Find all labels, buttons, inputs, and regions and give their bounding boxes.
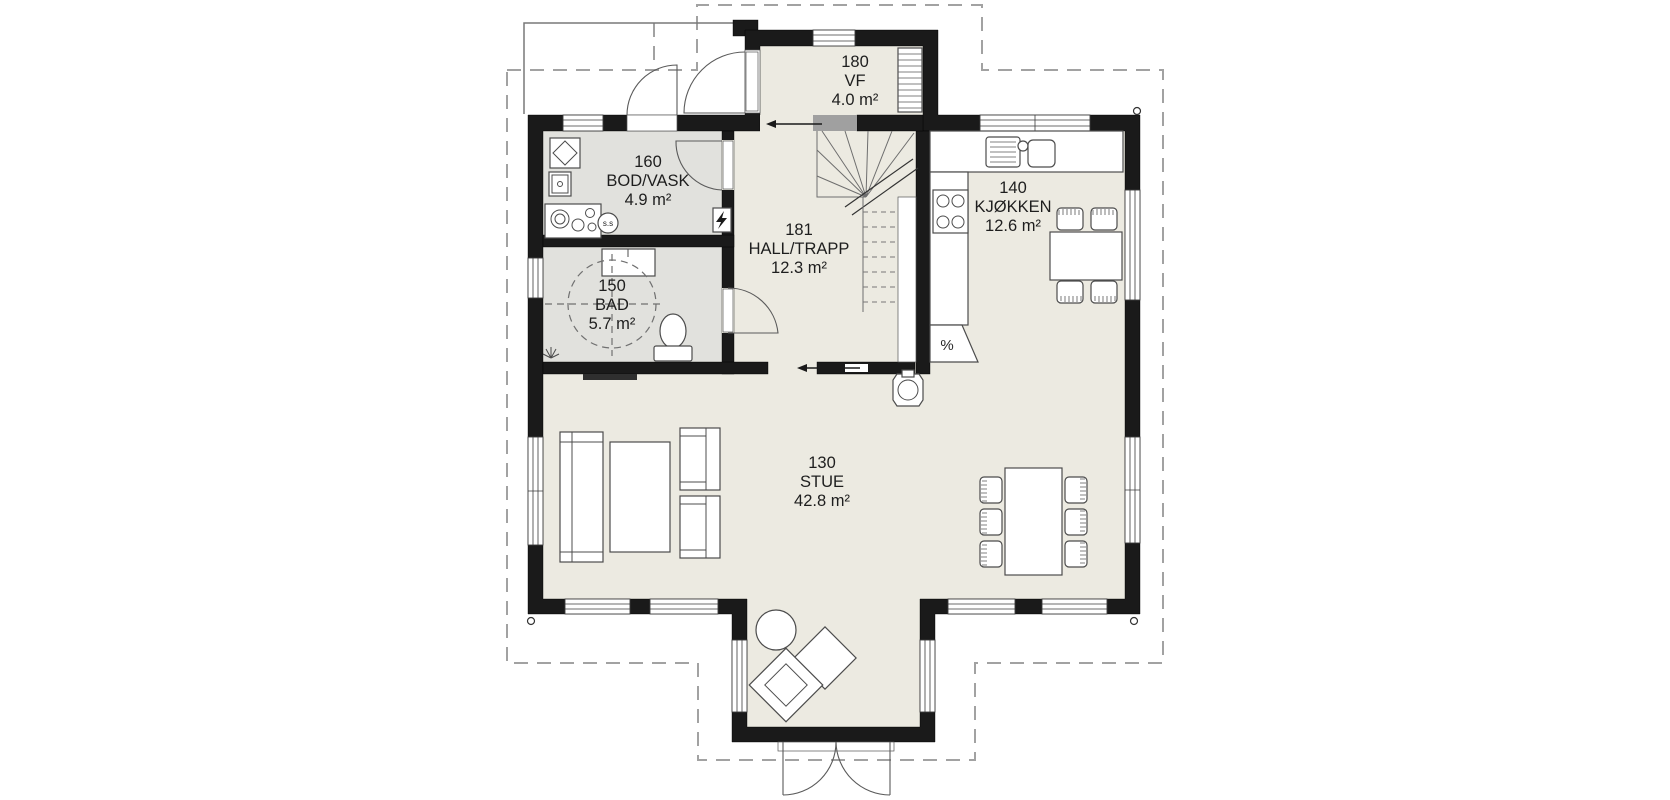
cooktop-icon <box>933 190 968 233</box>
window <box>1125 190 1140 300</box>
window <box>813 30 855 46</box>
svg-text:BAD: BAD <box>595 296 629 314</box>
svg-text:5.7 m²: 5.7 m² <box>589 315 636 333</box>
svg-text:181: 181 <box>785 221 813 239</box>
terrace-double-door <box>778 742 894 795</box>
chair <box>1057 208 1083 230</box>
kitchen-sink-icon <box>986 137 1055 167</box>
floor-drain-label: s.s <box>598 213 618 233</box>
wood-stove-icon <box>893 370 923 406</box>
svg-text:KJØKKEN: KJØKKEN <box>974 198 1051 216</box>
chair <box>1091 208 1117 230</box>
floor-plan-svg: s.s % <box>0 0 1670 800</box>
chair <box>1057 281 1083 303</box>
svg-text:STUE: STUE <box>800 473 844 491</box>
svg-text:42.8 m²: 42.8 m² <box>794 492 850 510</box>
armchair <box>680 496 720 558</box>
svg-text:s.s: s.s <box>603 219 613 228</box>
window <box>1042 599 1107 614</box>
chair <box>980 509 1002 535</box>
svg-text:BOD/VASK: BOD/VASK <box>606 172 689 190</box>
bath-threshold <box>583 374 637 380</box>
entrance-door <box>684 50 760 113</box>
water-heater-icon <box>549 172 571 196</box>
chair <box>980 477 1002 503</box>
round-table <box>756 610 796 650</box>
dining-table <box>1005 468 1062 575</box>
electrical-panel-icon <box>713 208 731 232</box>
utility-sink-icon <box>545 204 601 238</box>
svg-text:140: 140 <box>999 179 1027 197</box>
window <box>650 599 718 614</box>
svg-text:4.9 m²: 4.9 m² <box>625 191 672 209</box>
chair <box>1091 281 1117 303</box>
svg-text:%: % <box>940 337 953 354</box>
svg-text:130: 130 <box>808 454 836 472</box>
chair <box>980 541 1002 567</box>
window <box>980 115 1090 131</box>
svg-text:150: 150 <box>598 277 626 295</box>
vf-hall-sill <box>813 115 857 131</box>
vf-hall-opening <box>760 115 813 131</box>
armchair <box>680 428 720 490</box>
coffee-table <box>610 442 670 552</box>
chair <box>1065 509 1087 535</box>
window <box>528 437 543 545</box>
floor-plan-page: s.s % <box>0 0 1670 800</box>
bathroom-vanity <box>602 249 655 276</box>
svg-text:12.6 m²: 12.6 m² <box>985 217 1041 235</box>
svg-text:4.0 m²: 4.0 m² <box>832 91 879 109</box>
stair-stringer <box>898 197 916 362</box>
svg-text:HALL/TRAPP: HALL/TRAPP <box>749 240 850 258</box>
roof-drain-mark <box>1134 108 1141 115</box>
svg-text:160: 160 <box>634 153 662 171</box>
washing-machine-icon <box>550 138 580 168</box>
window <box>920 640 935 712</box>
sofa <box>560 432 603 562</box>
roof-drain-mark <box>528 618 535 625</box>
chair <box>1065 477 1087 503</box>
window <box>1125 437 1140 543</box>
roof-drain-mark <box>1131 618 1138 625</box>
chair <box>1065 541 1087 567</box>
window <box>565 599 630 614</box>
window <box>732 640 747 712</box>
svg-text:VF: VF <box>844 72 865 90</box>
bod-exterior-door <box>627 65 677 131</box>
window <box>948 599 1015 614</box>
svg-text:12.3 m²: 12.3 m² <box>771 259 827 277</box>
wardrobe-icon <box>898 48 922 112</box>
kitchen-table <box>1050 232 1122 280</box>
window <box>563 115 603 131</box>
svg-text:180: 180 <box>841 53 869 71</box>
window <box>528 258 543 298</box>
